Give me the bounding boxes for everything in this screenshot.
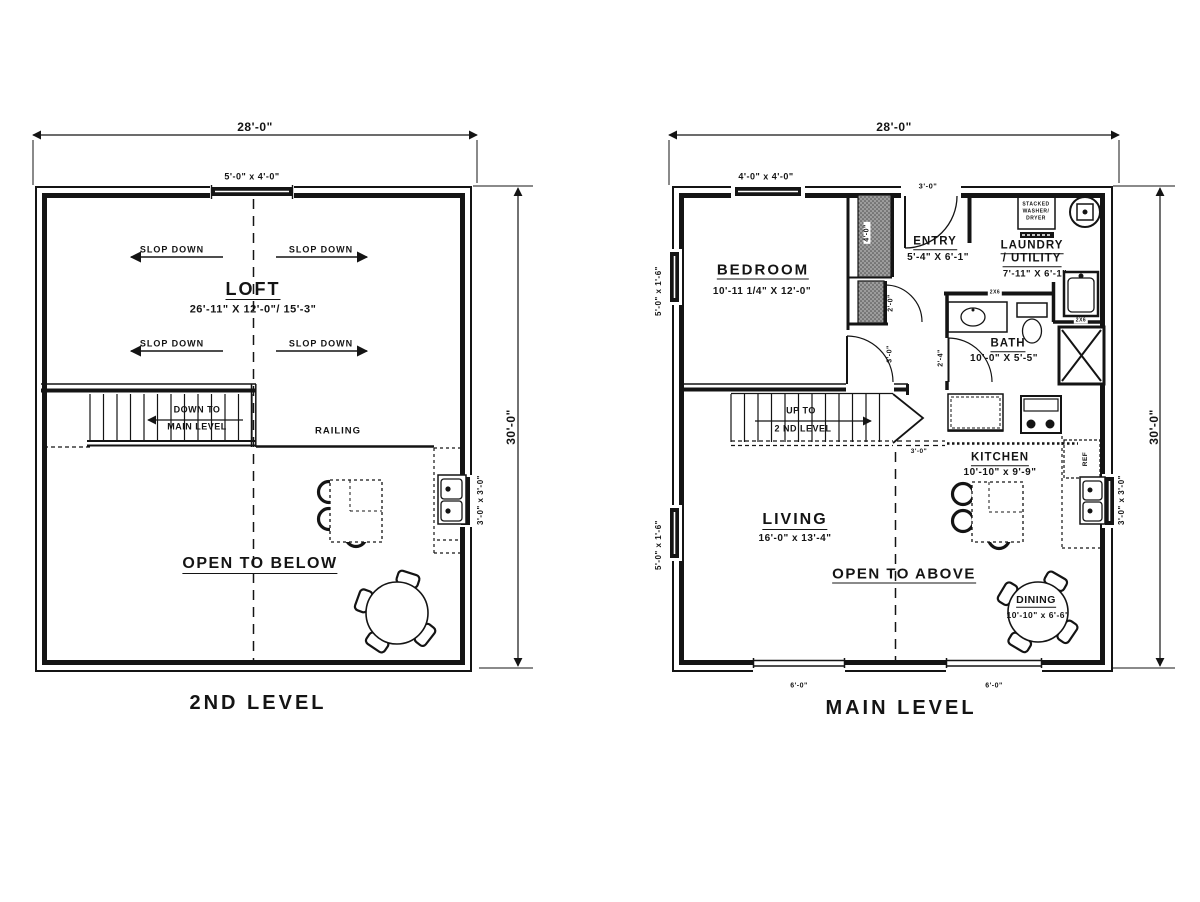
bath-label: BATH: [990, 338, 1025, 352]
slope-down-label: SLOP DOWN: [289, 246, 353, 255]
open-to-below-label: OPEN TO BELOW: [182, 556, 337, 574]
bath-dims: 10'-0" X 5'-5": [970, 354, 1038, 364]
entry-dims: 5'-4" X 6'-1": [907, 253, 969, 263]
open-to-above-label: OPEN TO ABOVE: [832, 567, 976, 584]
floorplan-canvas: 28'-0" 5'-0" x 4'-0" SLOP DOWN SLOP DOWN…: [0, 0, 1200, 902]
bottom-window-label: 6'-0": [790, 683, 808, 690]
kitchen-label: KITCHEN: [971, 452, 1029, 466]
loft-room-label: LOFT: [226, 280, 281, 300]
second-level-top-window-label: 5'-0" x 4'-0": [224, 173, 279, 182]
main-level-top-window-label: 4'-0" x 4'-0": [738, 173, 793, 182]
main-level-height-dim: 30'-0": [1148, 409, 1160, 445]
bottom-window-label: 6'-0": [985, 683, 1003, 690]
washer-label-line1: STACKED: [1022, 203, 1049, 208]
slope-down-label: SLOP DOWN: [140, 340, 204, 349]
living-label: LIVING: [762, 512, 827, 530]
bath-door-label: 2'-4": [938, 349, 945, 367]
bedroom-dims: 10'-11 1/4" X 12'-0": [713, 287, 811, 297]
laundry-dims: 7'-11" X 6'-1": [1003, 269, 1067, 279]
second-level-width-dim: 28'-0": [237, 121, 273, 133]
slope-down-label: SLOP DOWN: [289, 340, 353, 349]
bedroom-door-label: 3'-0": [887, 345, 894, 363]
left-window-label: 5'-0" x 1'-6": [655, 266, 663, 316]
washer-label-line3: DRYER: [1026, 217, 1046, 222]
main-level-plan: [667, 135, 1175, 673]
stairs-up-label-line1: UP TO: [786, 407, 816, 416]
bedroom-label: BEDROOM: [717, 263, 809, 280]
stairs-down-label-line1: DOWN TO: [174, 406, 221, 415]
washer-label-line2: WASHER/: [1023, 210, 1050, 215]
kitchen-dims: 10'-10" x 9'-9": [964, 468, 1037, 478]
main-level-width-dim: 28'-0": [876, 121, 912, 133]
entry-label: ENTRY: [913, 236, 957, 250]
loft-room-dims: 26'-11" X 12'-0"/ 15'-3": [190, 305, 317, 316]
main-level-title: MAIN LEVEL: [825, 698, 976, 718]
railing-label: RAILING: [315, 426, 361, 436]
second-level-height-dim: 30'-0": [505, 409, 517, 445]
left-window-label: 5'-0" x 1'-6": [655, 520, 663, 570]
stairs-down-label-line2: MAIN LEVEL: [167, 423, 227, 432]
second-level-right-window-label: 3'-0" x 3'-0": [477, 475, 485, 525]
second-level-title: 2ND LEVEL: [189, 693, 326, 713]
living-dims: 16'-0" x 13'-4": [759, 534, 832, 544]
dining-label: DINING: [1016, 595, 1056, 608]
entry-door-label: 3'-0": [917, 182, 940, 190]
wall-stud-label: 2X6: [1074, 319, 1088, 324]
refrigerator-label: REF: [1083, 452, 1090, 467]
second-level-plan: [33, 135, 533, 671]
hall-clearance-label: 3'-0": [911, 449, 928, 456]
slope-down-label: SLOP DOWN: [140, 246, 204, 255]
kitchen-window-label: 3'-0" x 3'-0": [1118, 475, 1126, 525]
stairs-up-label-line2: 2 ND LEVEL: [774, 425, 831, 434]
dining-dims: 10'-10" x 6'-6": [1006, 611, 1069, 620]
laundry-label-line2: / UTILITY: [1003, 253, 1062, 267]
closet-door-label: 2'-0": [888, 294, 895, 312]
closet-depth-label: 4'-0": [864, 222, 871, 244]
wall-stud-label: 2X6: [988, 291, 1002, 296]
